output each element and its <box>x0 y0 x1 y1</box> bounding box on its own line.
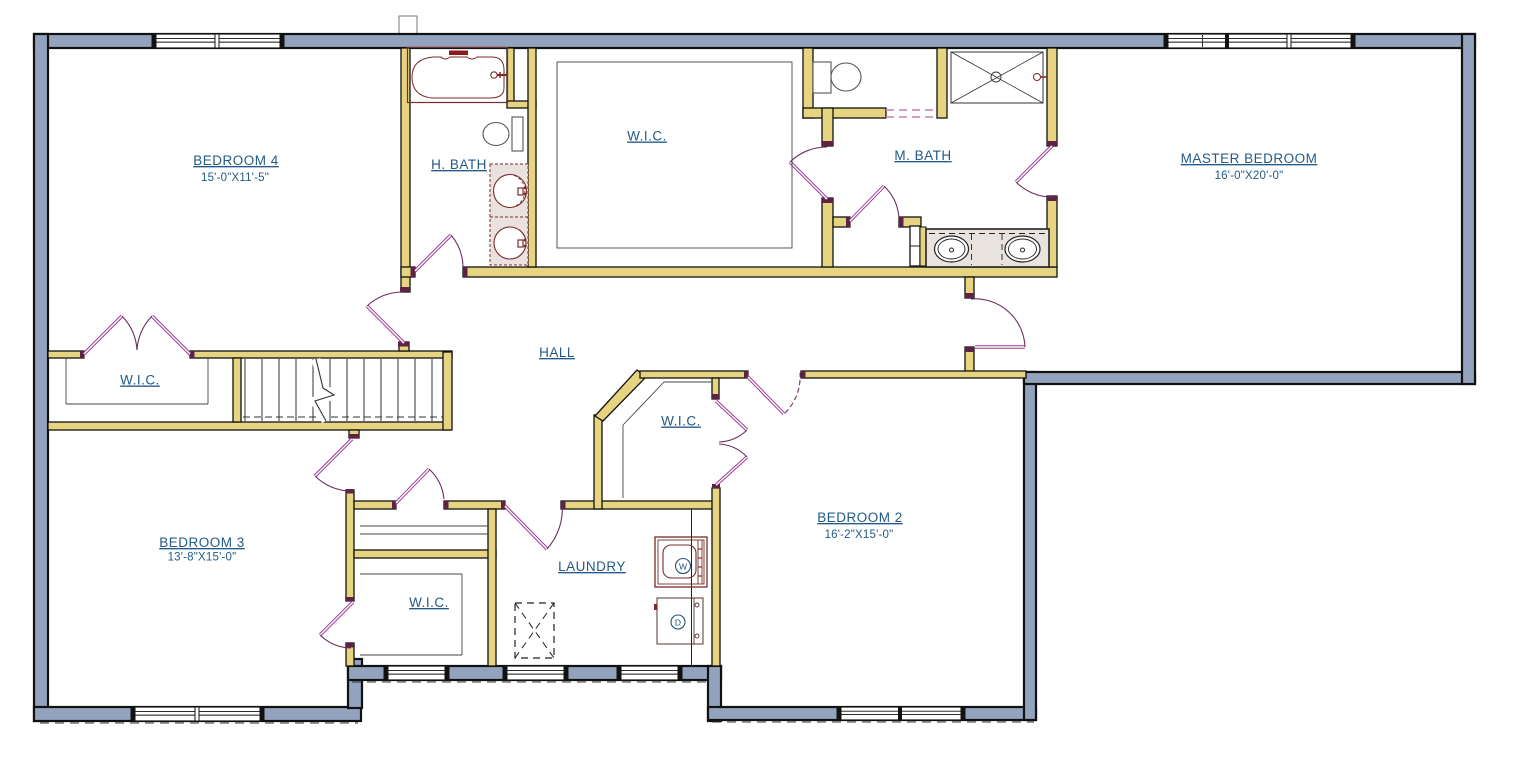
svg-text:MASTER BEDROOM: MASTER BEDROOM <box>1181 151 1318 166</box>
svg-text:W.I.C.: W.I.C. <box>661 414 701 429</box>
svg-text:HALL: HALL <box>539 345 575 360</box>
svg-text:LAUNDRY: LAUNDRY <box>558 559 626 574</box>
svg-text:W.I.C.: W.I.C. <box>120 373 160 388</box>
svg-text:BEDROOM 4: BEDROOM 4 <box>193 153 279 168</box>
svg-text:W.I.C.: W.I.C. <box>627 129 667 144</box>
svg-text:W: W <box>679 562 687 572</box>
svg-text:BEDROOM 3: BEDROOM 3 <box>159 535 245 550</box>
svg-text:BEDROOM 2: BEDROOM 2 <box>817 510 903 525</box>
svg-text:W.I.C.: W.I.C. <box>409 595 449 610</box>
svg-text:16'-0"X20'-0": 16'-0"X20'-0" <box>1215 170 1284 182</box>
svg-text:M. BATH: M. BATH <box>894 148 951 163</box>
svg-text:H. BATH: H. BATH <box>431 157 487 172</box>
svg-text:D: D <box>675 618 681 628</box>
svg-text:15'-0"X11'-5": 15'-0"X11'-5" <box>201 172 269 184</box>
svg-text:13'-8"X15'-0": 13'-8"X15'-0" <box>168 552 237 564</box>
svg-text:16'-2"X15'-0": 16'-2"X15'-0" <box>825 529 894 541</box>
